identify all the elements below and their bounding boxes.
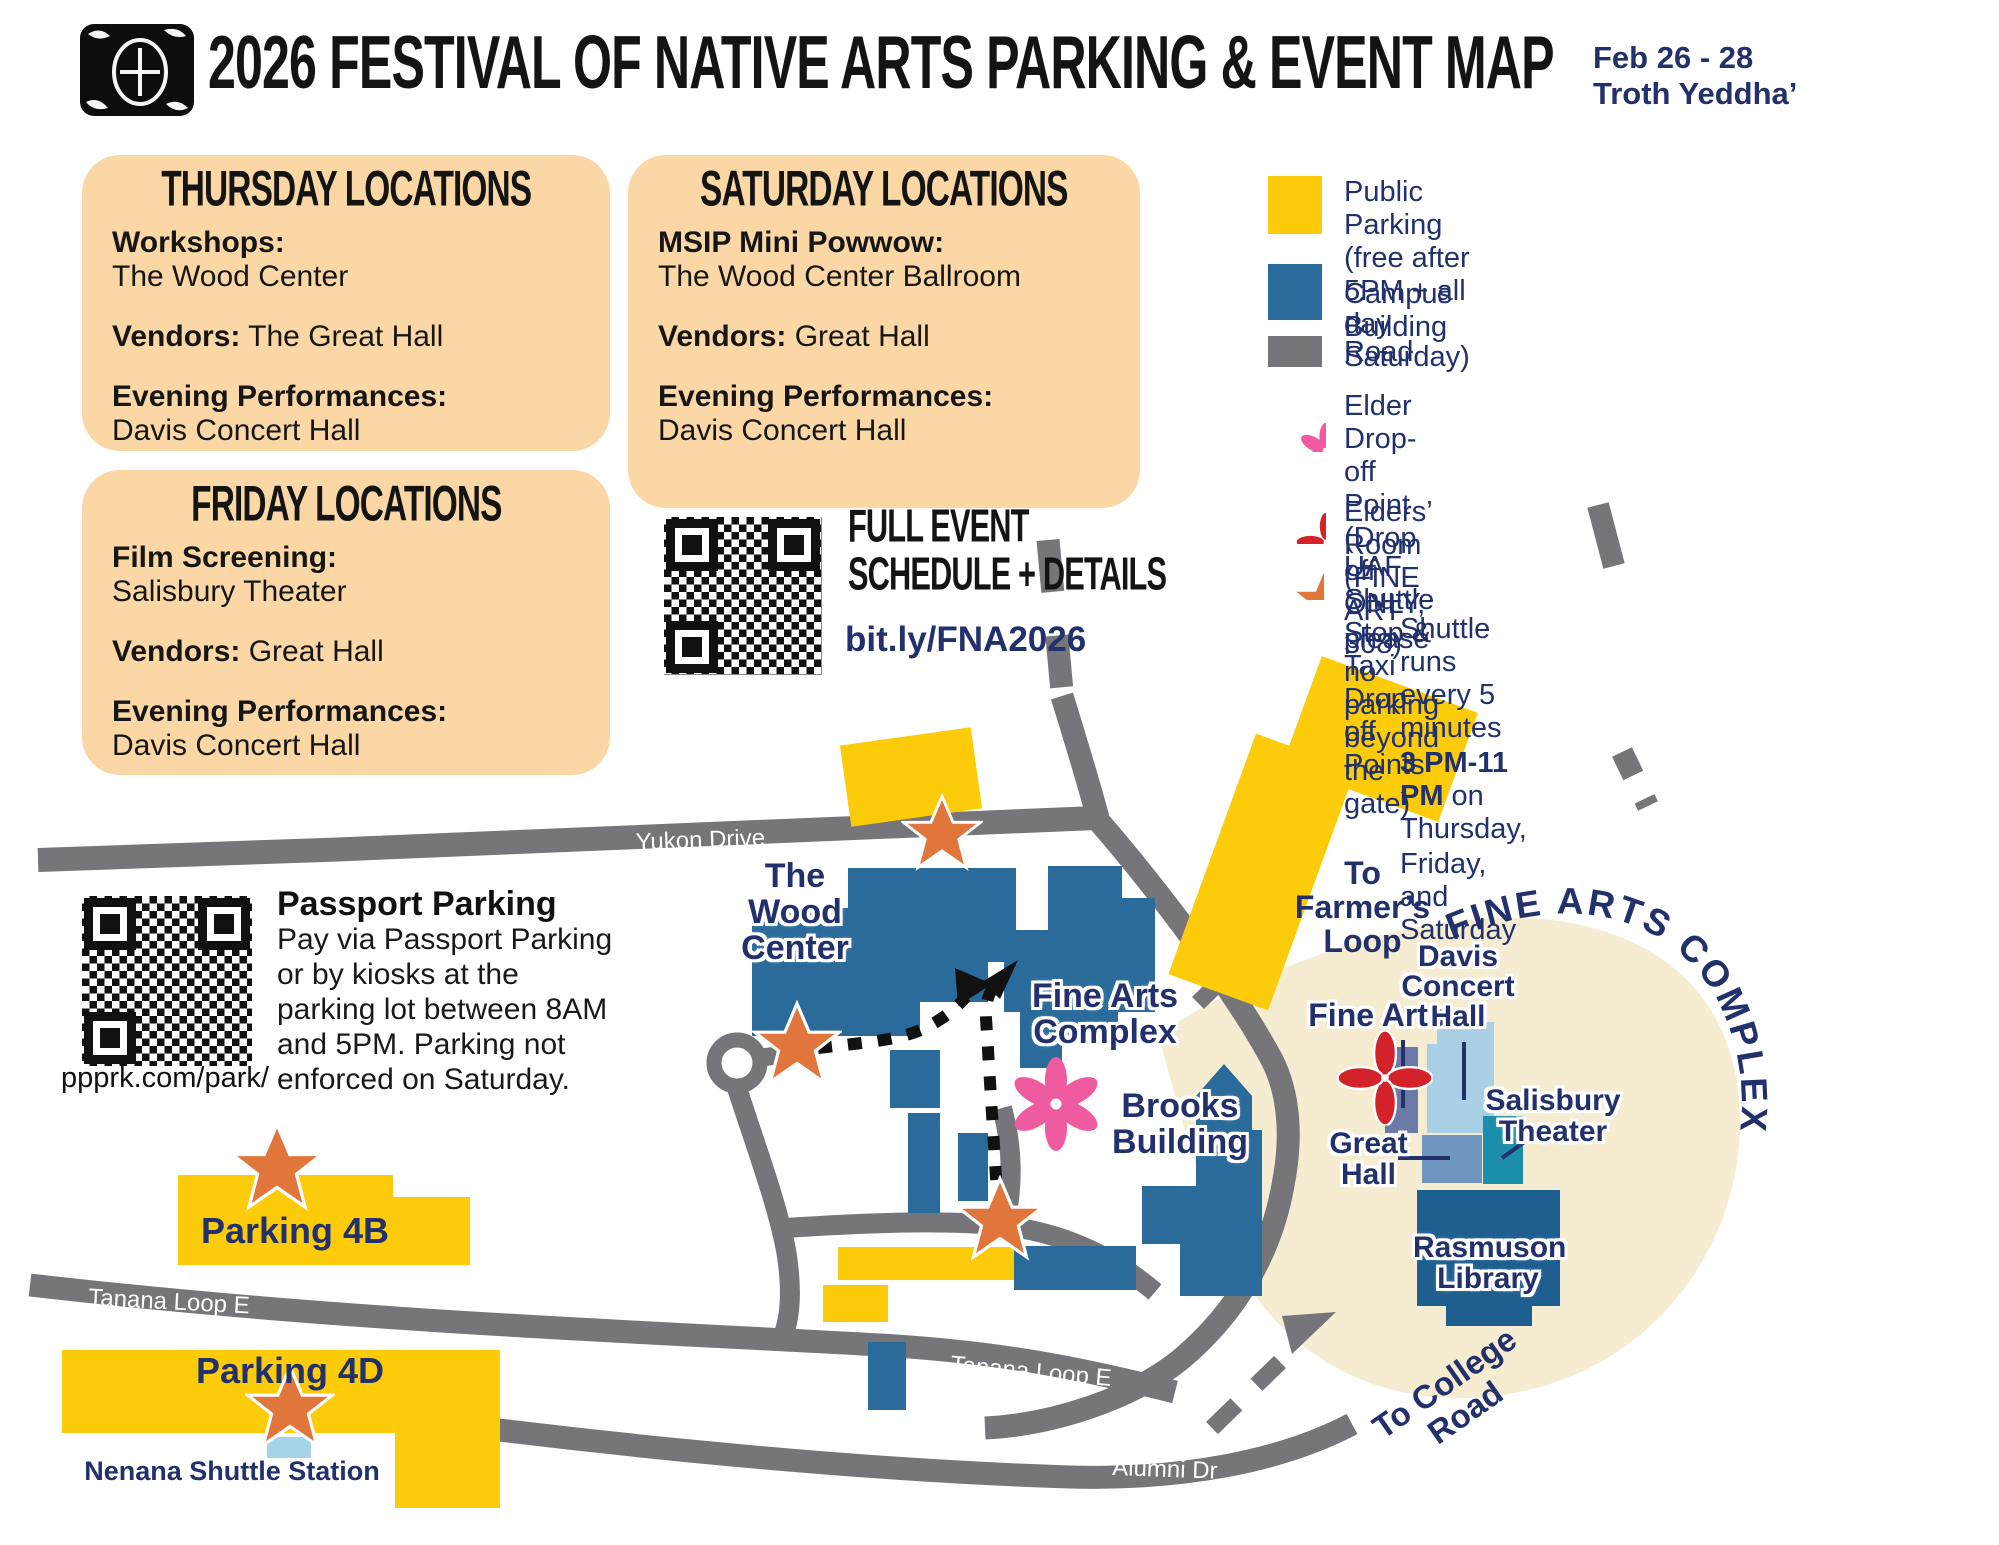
passport-parking-title: Passport Parking bbox=[277, 885, 557, 924]
friday-locations-box: FRIDAY LOCATIONS Film Screening:Salisbur… bbox=[82, 470, 610, 775]
label-tanana-left: Tanana Loop E bbox=[88, 1284, 251, 1319]
road-ne-dashes bbox=[1598, 505, 1614, 566]
public-parking-swatch bbox=[1268, 176, 1322, 234]
schedule-qr-code bbox=[660, 513, 826, 679]
inset-davis-label: Davis Concert Hall bbox=[1398, 942, 1518, 1032]
shuttle-stop-icon bbox=[1258, 534, 1324, 600]
legend-campus-building: Campus Building bbox=[1344, 278, 1452, 344]
festival-parking-map-poster: FINE ARTS COMPLEX Yukon Drive Tanana Loo… bbox=[0, 0, 1999, 1545]
label-alumni-dr: Alumni Dr bbox=[1112, 1454, 1218, 1485]
friday-vendors: Vendors: Great Hall bbox=[112, 635, 580, 669]
event-place-name: Troth Yeddha’ bbox=[1593, 76, 1797, 112]
saturday-vendors: Vendors: Great Hall bbox=[658, 320, 1110, 354]
friday-film: Film Screening:Salisbury Theater bbox=[112, 541, 580, 609]
road-ne-dashes-2 bbox=[1622, 752, 1648, 806]
bldg-small-3 bbox=[958, 1133, 988, 1201]
qr-finder bbox=[666, 519, 718, 571]
poster-title: 2026 FESTIVAL OF NATIVE ARTS PARKING & E… bbox=[208, 30, 1737, 96]
thursday-vendors: Vendors: The Great Hall bbox=[112, 320, 580, 354]
passport-qr-caption: ppprk.com/park/ bbox=[60, 1062, 270, 1095]
qr-finder bbox=[198, 898, 250, 950]
friday-evening: Evening Performances:Davis Concert Hall bbox=[112, 695, 580, 763]
saturday-title: SATURDAY LOCATIONS bbox=[658, 169, 1110, 212]
saturday-locations-box: SATURDAY LOCATIONS MSIP Mini Powwow:The … bbox=[628, 155, 1140, 508]
thursday-workshops: Workshops:The Wood Center bbox=[112, 226, 580, 294]
thursday-title: THURSDAY LOCATIONS bbox=[112, 169, 580, 212]
label-yukon-drive: Yukon Drive bbox=[635, 824, 765, 855]
schedule-heading: FULL EVENT SCHEDULE + DETAILS bbox=[848, 507, 1210, 595]
qr-finder bbox=[666, 621, 718, 673]
qr-finder bbox=[84, 1012, 136, 1064]
bldg-small-2 bbox=[908, 1113, 940, 1213]
saturday-evening: Evening Performances:Davis Concert Hall bbox=[658, 380, 1110, 448]
road-roundabout-south bbox=[737, 1088, 790, 1336]
passport-qr-code bbox=[78, 892, 256, 1070]
schedule-link: bit.ly/FNA2026 bbox=[845, 620, 1086, 660]
brooks-building-label: Brooks Building bbox=[1095, 1088, 1265, 1160]
legend-road: Road bbox=[1344, 336, 1413, 369]
nenana-shuttle-platform bbox=[267, 1437, 311, 1458]
road-top-connector bbox=[1062, 696, 1098, 818]
parking-4b-label: Parking 4B bbox=[170, 1210, 420, 1252]
road-swatch bbox=[1268, 336, 1322, 367]
elder-dropoff-icon bbox=[1266, 390, 1326, 452]
bldg-small-5 bbox=[868, 1342, 906, 1410]
elder-dropoff-flower bbox=[1010, 1057, 1102, 1151]
wood-center-label: The Wood Center bbox=[715, 858, 875, 966]
qr-finder bbox=[768, 519, 820, 571]
inset-great-hall-label: Great Hall bbox=[1326, 1128, 1411, 1190]
qr-finder bbox=[84, 898, 136, 950]
thursday-locations-box: THURSDAY LOCATIONS Workshops:The Wood Ce… bbox=[82, 155, 610, 451]
roundabout bbox=[714, 1040, 760, 1086]
inset-salisbury-label: Salisbury Theater bbox=[1483, 1085, 1623, 1147]
friday-title: FRIDAY LOCATIONS bbox=[112, 484, 580, 527]
festival-logo bbox=[80, 24, 194, 116]
campus-building-swatch bbox=[1268, 264, 1322, 320]
lot-center-small bbox=[823, 1285, 888, 1322]
fine-arts-complex-label: Fine Arts Complex bbox=[1015, 978, 1195, 1050]
nenana-shuttle-label: Nenana Shuttle Station bbox=[72, 1456, 392, 1487]
date-range: Feb 26 - 28 bbox=[1593, 40, 1797, 76]
parking-4d-label: Parking 4D bbox=[165, 1350, 415, 1392]
bldg-small-4 bbox=[1014, 1246, 1136, 1290]
bldg-small-1 bbox=[890, 1050, 940, 1108]
thursday-evening: Evening Performances:Davis Concert Hall bbox=[112, 380, 580, 448]
saturday-powwow: MSIP Mini Powwow:The Wood Center Ballroo… bbox=[658, 226, 1110, 294]
label-tanana-center: Tanana Loop E bbox=[949, 1351, 1112, 1392]
passport-parking-body: Pay via Passport Parking or by kiosks at… bbox=[277, 922, 622, 1097]
event-dates: Feb 26 - 28 Troth Yeddha’ bbox=[1593, 40, 1797, 112]
college-road-arrow-dashes bbox=[1212, 1362, 1280, 1428]
inset-rasmuson-label: Rasmuson Library bbox=[1413, 1232, 1563, 1294]
